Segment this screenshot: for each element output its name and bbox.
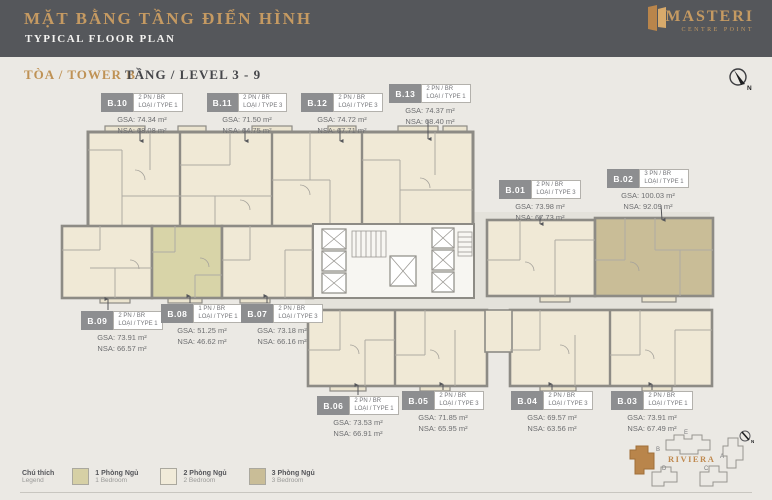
unit-callout-b11: B.11 2 PN / BRLOẠI / TYPE 3 GSA: 71.50 m… bbox=[197, 93, 297, 135]
unit-nsa: NSA: 64.75 m² bbox=[222, 126, 271, 135]
unit-gsa: GSA: 73.18 m² bbox=[257, 326, 307, 335]
minimap-building-a: A bbox=[720, 454, 724, 460]
unit-id-badge: B.07 bbox=[241, 304, 273, 323]
top-wing bbox=[88, 132, 473, 228]
unit-nsa: NSA: 68.08 m² bbox=[117, 126, 166, 135]
unit-id-badge: B.04 bbox=[511, 391, 543, 410]
minimap-compass-icon: N bbox=[740, 431, 754, 444]
minimap-building-d: D bbox=[662, 466, 667, 472]
legend-swatch-3br bbox=[249, 468, 266, 485]
unit-nsa: NSA: 67.73 m² bbox=[515, 213, 564, 222]
legend-item-3br: 3 Phòng Ngủ 3 Bedroom bbox=[249, 468, 315, 485]
unit-callout-b01: B.01 2 PN / BRLOẠI / TYPE 3 GSA: 73.98 m… bbox=[490, 180, 590, 222]
svg-text:N: N bbox=[751, 439, 754, 444]
unit-gsa: GSA: 71.85 m² bbox=[418, 413, 468, 422]
unit-id-badge: B.09 bbox=[81, 311, 113, 330]
unit-gsa: GSA: 51.25 m² bbox=[177, 326, 227, 335]
unit-callout-b02: B.02 3 PN / BRLOẠI / TYPE 1 GSA: 100.03 … bbox=[598, 169, 698, 211]
unit-nsa: NSA: 65.95 m² bbox=[418, 424, 467, 433]
unit-nsa: NSA: 46.62 m² bbox=[177, 337, 226, 346]
unit-id-badge: B.10 bbox=[101, 93, 133, 112]
unit-callout-b12: B.12 2 PN / BRLOẠI / TYPE 3 GSA: 74.72 m… bbox=[292, 93, 392, 135]
unit-gsa: GSA: 71.50 m² bbox=[222, 115, 272, 124]
page: MẶT BẰNG TẦNG ĐIỂN HÌNH TYPICAL FLOOR PL… bbox=[0, 0, 772, 500]
unit-nsa: NSA: 66.16 m² bbox=[257, 337, 306, 346]
unit-gsa: GSA: 73.91 m² bbox=[97, 333, 147, 342]
unit-id-badge: B.08 bbox=[161, 304, 193, 323]
unit-callout-b04: B.04 2 PN / BRLOẠI / TYPE 3 GSA: 69.57 m… bbox=[502, 391, 602, 433]
unit-nsa: NSA: 68.40 m² bbox=[405, 117, 454, 126]
legend-title-vi: Chú thích bbox=[22, 470, 54, 477]
legend-item-2br: 2 Phòng Ngủ 2 Bedroom bbox=[160, 468, 226, 485]
unit-gsa: GSA: 100.03 m² bbox=[621, 191, 675, 200]
unit-id-badge: B.13 bbox=[389, 84, 421, 103]
unit-callout-b05: B.05 2 PN / BRLOẠI / TYPE 3 GSA: 71.85 m… bbox=[393, 391, 493, 433]
bottom-divider bbox=[20, 492, 752, 493]
unit-gsa: GSA: 73.53 m² bbox=[333, 418, 383, 427]
legend-title-en: Legend bbox=[22, 477, 54, 484]
unit-id-badge: B.11 bbox=[207, 93, 239, 112]
bottom-wing bbox=[308, 310, 712, 386]
minimap-building-e: E bbox=[684, 430, 688, 436]
minimap-site-label: RIVIERA bbox=[668, 454, 715, 464]
unit-nsa: NSA: 66.57 m² bbox=[97, 344, 146, 353]
legend-item-1br: 1 Phòng Ngủ 1 Bedroom bbox=[72, 468, 138, 485]
unit-callout-b07: B.07 2 PN / BRLOẠI / TYPE 3 GSA: 73.18 m… bbox=[232, 304, 332, 346]
unit-nsa: NSA: 66.91 m² bbox=[333, 429, 382, 438]
unit-id-badge: B.05 bbox=[402, 391, 434, 410]
middle-strip bbox=[62, 218, 713, 298]
unit-nsa: NSA: 67.71 m² bbox=[317, 126, 366, 135]
unit-gsa: GSA: 73.91 m² bbox=[627, 413, 677, 422]
unit-nsa: NSA: 63.56 m² bbox=[527, 424, 576, 433]
unit-gsa: GSA: 73.98 m² bbox=[515, 202, 565, 211]
unit-id-badge: B.06 bbox=[317, 396, 349, 415]
unit-gsa: GSA: 69.57 m² bbox=[527, 413, 577, 422]
unit-gsa: GSA: 74.72 m² bbox=[317, 115, 367, 124]
site-minimap: E B A D C RIVIERA N bbox=[628, 426, 764, 490]
unit-gsa: GSA: 74.37 m² bbox=[405, 106, 455, 115]
legend: Chú thích Legend 1 Phòng Ngủ 1 Bedroom 2… bbox=[22, 468, 337, 485]
legend-swatch-2br bbox=[160, 468, 177, 485]
unit-id-badge: B.02 bbox=[607, 169, 639, 188]
legend-swatch-1br bbox=[72, 468, 89, 485]
unit-id-badge: B.03 bbox=[611, 391, 643, 410]
unit-gsa: GSA: 74.34 m² bbox=[117, 115, 167, 124]
unit-id-badge: B.01 bbox=[499, 180, 531, 199]
unit-callout-b13: B.13 2 PN / BRLOẠI / TYPE 1 GSA: 74.37 m… bbox=[380, 84, 480, 126]
unit-callout-b10: B.10 2 PN / BRLOẠI / TYPE 1 GSA: 74.34 m… bbox=[92, 93, 192, 135]
minimap-building-c: C bbox=[704, 466, 709, 472]
unit-nsa: NSA: 92.09 m² bbox=[623, 202, 672, 211]
minimap-building-b: B bbox=[656, 447, 660, 453]
unit-id-badge: B.12 bbox=[301, 93, 333, 112]
